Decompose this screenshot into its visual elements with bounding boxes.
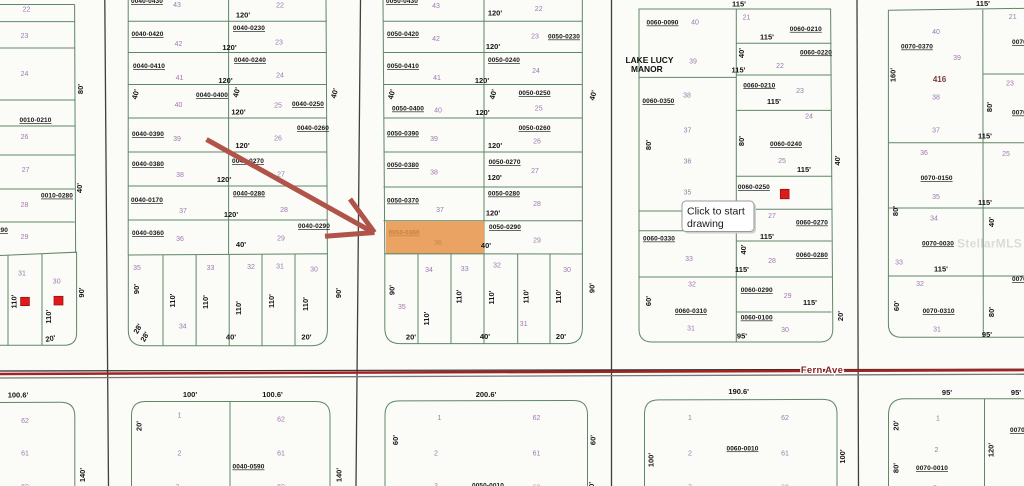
svg-text:31: 31	[933, 327, 941, 334]
svg-text:27: 27	[531, 168, 539, 175]
svg-text:43: 43	[173, 2, 181, 9]
svg-text:22: 22	[776, 63, 784, 70]
svg-text:110': 110'	[554, 289, 563, 303]
svg-text:38: 38	[176, 172, 184, 179]
svg-text:30: 30	[563, 267, 571, 274]
svg-text:33: 33	[895, 260, 903, 267]
svg-text:0050-0370: 0050-0370	[387, 198, 419, 205]
svg-text:31: 31	[18, 271, 26, 278]
svg-text:62: 62	[781, 415, 789, 422]
svg-text:39: 39	[953, 55, 961, 62]
svg-text:0040-0230: 0040-0230	[233, 25, 265, 32]
svg-text:0060-0220: 0060-0220	[800, 49, 832, 56]
svg-text:0060-0280: 0060-0280	[796, 252, 828, 259]
svg-text:416: 416	[933, 75, 947, 84]
svg-text:140': 140'	[78, 468, 87, 483]
svg-text:100': 100'	[838, 449, 847, 464]
svg-text:24: 24	[21, 71, 29, 78]
svg-text:38: 38	[683, 93, 691, 100]
svg-text:61: 61	[781, 451, 789, 458]
svg-text:31: 31	[276, 264, 284, 271]
svg-text:31: 31	[687, 326, 695, 333]
svg-text:115': 115'	[934, 265, 948, 274]
svg-text:32: 32	[247, 264, 255, 271]
svg-text:0060-0310: 0060-0310	[675, 308, 707, 315]
svg-text:34: 34	[179, 324, 187, 331]
svg-text:35: 35	[684, 190, 692, 197]
svg-text:0040-0430: 0040-0430	[131, 0, 163, 5]
svg-text:95': 95'	[1011, 388, 1021, 397]
svg-text:37: 37	[932, 128, 940, 135]
svg-text:80': 80'	[987, 307, 996, 317]
svg-text:110': 110'	[522, 289, 531, 303]
svg-text:95': 95'	[737, 332, 747, 341]
svg-text:140': 140'	[335, 468, 344, 483]
svg-text:110': 110'	[422, 311, 431, 325]
svg-text:0070-0030: 0070-0030	[922, 240, 954, 247]
svg-text:41: 41	[176, 75, 184, 82]
svg-text:41: 41	[433, 75, 441, 82]
svg-text:0070-0130: 0070-0130	[1010, 427, 1024, 434]
svg-text:60': 60'	[589, 435, 598, 445]
svg-text:120': 120'	[486, 209, 501, 218]
svg-text:115': 115'	[767, 97, 781, 106]
svg-text:0070-0370: 0070-0370	[901, 44, 933, 51]
svg-text:37: 37	[436, 207, 444, 214]
svg-text:39: 39	[430, 136, 438, 143]
svg-text:0070-0010: 0070-0010	[916, 465, 948, 472]
svg-text:110': 110'	[168, 293, 177, 307]
svg-text:20': 20'	[135, 421, 144, 431]
svg-text:23: 23	[21, 33, 29, 40]
svg-text:29: 29	[21, 234, 29, 241]
svg-text:29: 29	[784, 293, 792, 300]
svg-text:32: 32	[916, 281, 924, 288]
svg-text:115': 115'	[978, 132, 992, 141]
svg-text:36: 36	[434, 240, 442, 247]
svg-text:140': 140'	[587, 482, 596, 486]
svg-text:drawing: drawing	[687, 218, 724, 230]
svg-text:110': 110'	[201, 295, 210, 309]
svg-text:33: 33	[207, 265, 215, 272]
svg-text:115': 115'	[732, 0, 746, 9]
svg-text:26: 26	[21, 134, 29, 141]
svg-text:22: 22	[535, 6, 543, 13]
svg-text:80': 80'	[891, 206, 900, 216]
svg-text:62: 62	[277, 417, 285, 424]
svg-text:0050-0360: 0050-0360	[389, 230, 420, 237]
svg-text:160': 160'	[889, 68, 898, 83]
svg-text:23: 23	[1006, 81, 1014, 88]
svg-text:115': 115'	[797, 165, 811, 174]
svg-text:0040-0260: 0040-0260	[297, 125, 329, 132]
svg-text:0060-0290: 0060-0290	[741, 287, 773, 294]
svg-text:0010-0210: 0010-0210	[20, 117, 52, 124]
svg-text:61: 61	[533, 451, 541, 458]
svg-text:36: 36	[684, 159, 692, 166]
svg-text:80': 80'	[76, 84, 85, 94]
svg-text:115': 115'	[735, 265, 749, 274]
svg-text:40': 40'	[226, 332, 236, 341]
svg-text:24: 24	[532, 68, 540, 75]
svg-text:22: 22	[23, 7, 31, 14]
svg-text:28: 28	[533, 201, 541, 208]
svg-text:36: 36	[176, 236, 184, 243]
svg-text:40': 40'	[833, 155, 842, 165]
svg-text:190.6': 190.6'	[728, 387, 749, 396]
svg-text:110': 110'	[301, 297, 310, 311]
svg-text:0070-0230: 0070-0230	[1012, 110, 1024, 117]
svg-text:29: 29	[533, 238, 541, 245]
svg-text:1: 1	[438, 415, 442, 422]
svg-text:37: 37	[684, 128, 692, 135]
svg-text:100.6': 100.6'	[262, 390, 283, 399]
svg-text:20': 20'	[836, 311, 845, 321]
svg-text:40': 40'	[737, 48, 746, 58]
svg-text:90': 90'	[77, 287, 86, 297]
svg-text:95': 95'	[982, 330, 992, 339]
svg-text:0040-0390: 0040-0390	[132, 131, 164, 138]
svg-text:22: 22	[276, 3, 284, 10]
svg-text:120': 120'	[224, 210, 239, 219]
svg-text:35: 35	[932, 194, 940, 201]
svg-text:0050-0270: 0050-0270	[489, 159, 521, 166]
svg-text:110': 110'	[234, 301, 243, 315]
svg-text:0040-0290: 0040-0290	[298, 223, 330, 230]
svg-text:0040-0590: 0040-0590	[233, 464, 265, 471]
svg-text:115': 115'	[803, 298, 817, 307]
svg-text:1: 1	[178, 413, 182, 420]
svg-text:0040-0420: 0040-0420	[132, 31, 164, 38]
svg-text:37: 37	[179, 208, 187, 215]
svg-text:120': 120'	[218, 76, 233, 85]
svg-text:21: 21	[1009, 14, 1017, 21]
svg-text:115': 115'	[978, 198, 992, 207]
svg-text:80': 80'	[737, 136, 746, 146]
svg-text:0050-0380: 0050-0380	[387, 162, 419, 169]
svg-text:34: 34	[930, 216, 938, 223]
svg-text:0040-0240: 0040-0240	[234, 57, 266, 64]
svg-text:115': 115'	[760, 232, 774, 241]
svg-text:100': 100'	[647, 453, 656, 468]
svg-text:0060-0270: 0060-0270	[796, 220, 828, 227]
svg-text:0040-0250: 0040-0250	[292, 101, 324, 108]
svg-text:26: 26	[533, 139, 541, 146]
svg-text:62: 62	[21, 418, 29, 425]
svg-text:60': 60'	[391, 435, 400, 445]
svg-text:0050-0390: 0050-0390	[387, 131, 419, 138]
svg-text:Fern Ave: Fern Ave	[801, 365, 843, 376]
svg-text:32: 32	[493, 263, 501, 270]
svg-text:28: 28	[280, 207, 288, 214]
svg-text:StellarMLS: StellarMLS	[957, 237, 1022, 251]
svg-text:0050-0430: 0050-0430	[386, 0, 418, 5]
svg-text:35: 35	[398, 304, 406, 311]
svg-text:0060-0240: 0060-0240	[770, 141, 802, 148]
svg-text:120': 120'	[987, 443, 996, 458]
svg-text:62: 62	[533, 415, 541, 422]
svg-text:2: 2	[434, 451, 438, 458]
svg-text:34: 34	[425, 267, 433, 274]
svg-text:0070-0110: 0070-0110	[1012, 276, 1024, 283]
svg-text:20': 20'	[406, 332, 416, 341]
svg-text:95': 95'	[942, 388, 952, 397]
svg-text:61: 61	[21, 451, 29, 458]
svg-text:40: 40	[175, 102, 183, 109]
svg-text:MANOR: MANOR	[631, 64, 663, 74]
svg-text:0050-0240: 0050-0240	[488, 57, 520, 64]
svg-text:90': 90'	[334, 288, 343, 298]
svg-text:28: 28	[768, 258, 776, 265]
svg-text:0070-0310: 0070-0310	[923, 308, 955, 315]
svg-text:38: 38	[430, 170, 438, 177]
svg-text:0010-0290: 0010-0290	[0, 227, 8, 234]
svg-text:120': 120'	[235, 141, 250, 150]
svg-text:90': 90'	[588, 283, 597, 293]
svg-text:1: 1	[688, 415, 692, 422]
svg-text:60': 60'	[644, 296, 653, 306]
svg-text:2: 2	[935, 447, 939, 454]
svg-text:120': 120'	[488, 141, 503, 150]
svg-text:42: 42	[175, 41, 183, 48]
svg-text:80': 80'	[985, 102, 994, 112]
svg-text:27: 27	[22, 167, 30, 174]
svg-text:23: 23	[531, 34, 539, 41]
svg-text:30: 30	[781, 327, 789, 334]
svg-text:0060-0210: 0060-0210	[790, 26, 822, 33]
svg-text:0050-0230: 0050-0230	[548, 34, 580, 41]
svg-text:21: 21	[743, 15, 751, 22]
svg-text:39: 39	[689, 59, 697, 66]
svg-text:120': 120'	[475, 76, 490, 85]
svg-text:120': 120'	[488, 9, 503, 18]
svg-text:24: 24	[276, 73, 284, 80]
svg-text:27: 27	[768, 213, 776, 220]
svg-text:30: 30	[53, 279, 61, 286]
svg-text:0060-0330: 0060-0330	[643, 236, 675, 243]
svg-text:0040-0360: 0040-0360	[132, 230, 164, 237]
svg-text:39: 39	[173, 136, 181, 143]
svg-text:23: 23	[275, 40, 283, 47]
svg-text:0040-0410: 0040-0410	[133, 63, 165, 70]
svg-text:32: 32	[688, 282, 696, 289]
svg-text:40': 40'	[75, 183, 84, 193]
svg-text:120': 120'	[475, 108, 490, 117]
svg-text:40': 40'	[739, 244, 748, 254]
svg-text:Click to start: Click to start	[687, 206, 745, 218]
svg-text:0060-0010: 0060-0010	[727, 445, 759, 452]
svg-text:0050-0280: 0050-0280	[488, 191, 520, 198]
svg-text:40': 40'	[236, 240, 246, 249]
svg-text:0050-0420: 0050-0420	[387, 31, 419, 38]
svg-text:110': 110'	[267, 294, 276, 308]
svg-text:20': 20'	[892, 420, 901, 430]
svg-text:90': 90'	[388, 285, 397, 295]
svg-text:115': 115'	[732, 66, 746, 75]
svg-text:0070-0150: 0070-0150	[921, 175, 953, 182]
svg-text:90': 90'	[132, 284, 141, 294]
svg-text:25: 25	[1002, 151, 1010, 158]
svg-text:38: 38	[932, 95, 940, 102]
svg-text:0050-0410: 0050-0410	[387, 63, 419, 70]
svg-text:110': 110'	[487, 290, 496, 304]
svg-text:33: 33	[685, 256, 693, 263]
svg-text:0050-0010: 0050-0010	[472, 483, 504, 486]
svg-text:40: 40	[434, 108, 442, 115]
svg-text:120': 120'	[222, 43, 237, 52]
svg-text:2: 2	[688, 451, 692, 458]
svg-text:0050-0260: 0050-0260	[519, 125, 551, 132]
svg-text:30: 30	[310, 267, 318, 274]
svg-text:120': 120'	[488, 173, 503, 182]
svg-text:28: 28	[21, 202, 29, 209]
svg-text:40: 40	[932, 29, 940, 36]
svg-text:0060-0250: 0060-0250	[738, 184, 770, 191]
svg-text:26: 26	[274, 136, 282, 143]
svg-text:0070-0210: 0070-0210	[1012, 39, 1024, 46]
svg-text:0040-0280: 0040-0280	[233, 191, 265, 198]
svg-text:120': 120'	[486, 42, 501, 51]
svg-text:0050-0400: 0050-0400	[392, 106, 424, 113]
svg-text:80': 80'	[644, 140, 653, 150]
svg-text:0040-0380: 0040-0380	[132, 161, 164, 168]
svg-text:36: 36	[920, 150, 928, 157]
svg-text:0060-0100: 0060-0100	[741, 315, 773, 322]
svg-text:40': 40'	[480, 332, 490, 341]
svg-text:115': 115'	[976, 0, 990, 8]
svg-text:0010-0280: 0010-0280	[41, 193, 73, 200]
svg-text:0060-0350: 0060-0350	[642, 98, 674, 105]
svg-text:23: 23	[796, 88, 804, 95]
svg-text:40': 40'	[481, 241, 491, 250]
svg-text:61: 61	[277, 451, 285, 458]
svg-text:80': 80'	[892, 463, 901, 473]
svg-text:25: 25	[778, 158, 786, 165]
svg-text:25: 25	[274, 103, 282, 110]
svg-text:40': 40'	[987, 217, 996, 227]
svg-text:29: 29	[277, 236, 285, 243]
svg-text:33: 33	[461, 266, 469, 273]
svg-text:1: 1	[936, 416, 940, 423]
svg-text:40: 40	[691, 20, 699, 27]
svg-text:60': 60'	[892, 301, 901, 311]
svg-text:100.6': 100.6'	[8, 391, 29, 400]
svg-text:120': 120'	[236, 11, 251, 20]
svg-text:20': 20'	[556, 332, 566, 341]
svg-text:120': 120'	[217, 175, 232, 184]
svg-text:0060-0090: 0060-0090	[647, 20, 679, 27]
svg-text:42: 42	[432, 36, 440, 43]
svg-text:0040-0170: 0040-0170	[131, 197, 163, 204]
svg-text:110': 110'	[10, 294, 19, 308]
svg-text:0050-0290: 0050-0290	[489, 224, 521, 231]
svg-text:110': 110'	[455, 289, 464, 303]
svg-text:200.6': 200.6'	[476, 390, 497, 399]
svg-text:35: 35	[133, 265, 141, 272]
svg-text:115': 115'	[760, 33, 774, 42]
svg-text:20': 20'	[301, 332, 311, 341]
svg-text:0040-0400: 0040-0400	[196, 92, 228, 99]
svg-text:0050-0250: 0050-0250	[519, 90, 551, 97]
svg-text:25: 25	[535, 106, 543, 113]
svg-text:31: 31	[520, 321, 528, 328]
svg-text:110': 110'	[44, 310, 53, 324]
svg-text:120': 120'	[231, 108, 246, 117]
svg-text:43: 43	[432, 3, 440, 10]
svg-text:100': 100'	[183, 390, 198, 399]
svg-text:2: 2	[178, 451, 182, 458]
svg-text:0060-0210: 0060-0210	[743, 82, 775, 89]
svg-text:24: 24	[805, 113, 813, 120]
